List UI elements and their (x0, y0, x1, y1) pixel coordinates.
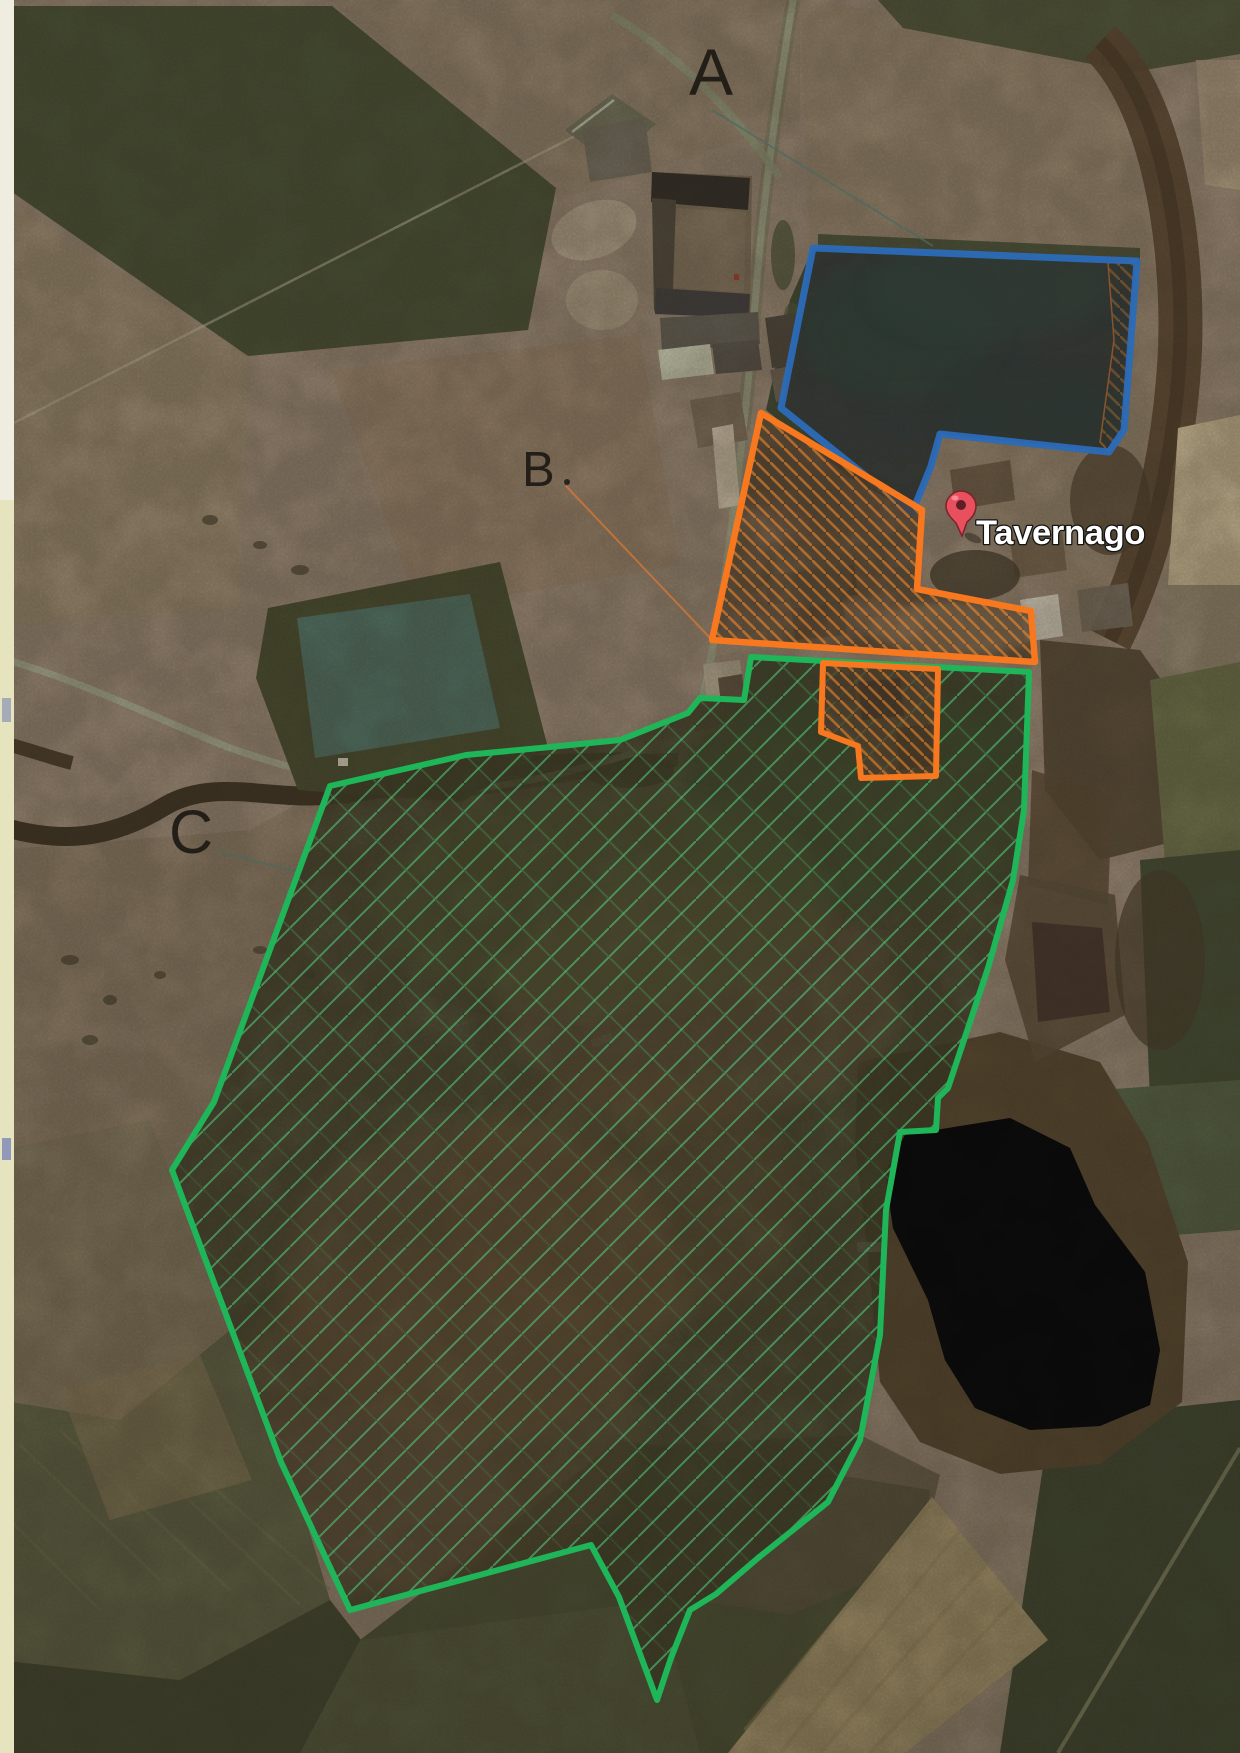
svg-text:B: B (522, 443, 555, 497)
svg-text:A: A (689, 35, 733, 109)
svg-text:C: C (169, 798, 213, 866)
svg-text:Tavernago: Tavernago (976, 514, 1145, 552)
